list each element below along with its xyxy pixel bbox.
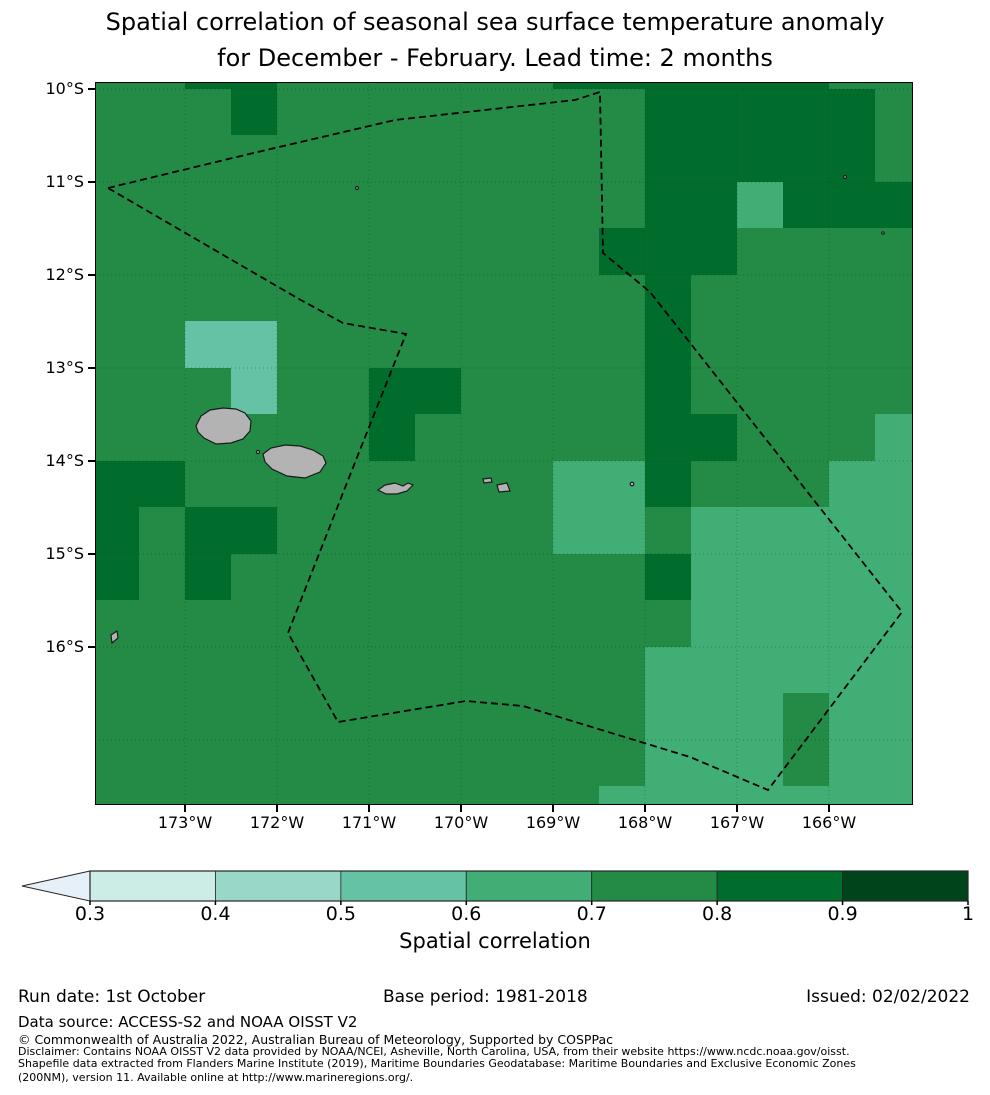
grid-cell xyxy=(829,275,875,321)
grid-cell xyxy=(875,228,913,275)
grid-cell xyxy=(231,600,277,647)
grid-cell xyxy=(277,182,323,228)
colorbar-label: Spatial correlation xyxy=(0,929,990,953)
grid-cell xyxy=(461,600,507,647)
grid-cell xyxy=(369,228,415,275)
grid-cell xyxy=(553,600,599,647)
figure-title: Spatial correlation of seasonal sea surf… xyxy=(0,4,990,76)
grid-cell xyxy=(783,554,829,600)
grid-cell xyxy=(95,228,139,275)
colorbar xyxy=(0,862,990,908)
colorbar-tick-label: 0.6 xyxy=(436,903,496,925)
issued-date-text: Issued: 02/02/2022 xyxy=(806,987,970,1007)
lon-tick-label: 167°W xyxy=(697,813,777,832)
grid-cell xyxy=(691,554,737,600)
grid-cell xyxy=(507,182,553,228)
grid-cell xyxy=(507,228,553,275)
grid-cell xyxy=(599,461,645,507)
grid-cell xyxy=(461,647,507,693)
grid-cell xyxy=(139,321,185,368)
grid-cell xyxy=(737,275,783,321)
grid-cell xyxy=(461,82,507,89)
colorbar-tick-label: 0.3 xyxy=(60,903,120,925)
grid-cell xyxy=(461,228,507,275)
grid-cell xyxy=(553,228,599,275)
lon-tick-mark xyxy=(736,805,738,812)
grid-cell xyxy=(691,461,737,507)
grid-cell xyxy=(829,507,875,554)
disclaimer-line: Shapefile data extracted from Flanders M… xyxy=(18,1057,856,1070)
grid-cell xyxy=(95,740,139,786)
grid-cell xyxy=(369,507,415,554)
grid-cell xyxy=(185,82,231,89)
grid-cell xyxy=(553,275,599,321)
grid-cell xyxy=(599,554,645,600)
grid-cell xyxy=(323,693,369,740)
grid-cell xyxy=(507,693,553,740)
grid-cell xyxy=(875,135,913,182)
colorbar-segment xyxy=(466,871,591,901)
grid-cell xyxy=(875,89,913,135)
grid-cell xyxy=(875,182,913,228)
grid-cell xyxy=(875,275,913,321)
grid-cell xyxy=(691,135,737,182)
grid-cell xyxy=(139,554,185,600)
lon-tick-mark xyxy=(276,805,278,812)
grid-cell xyxy=(461,786,507,805)
grid-cell xyxy=(553,786,599,805)
grid-cell xyxy=(185,740,231,786)
grid-cell xyxy=(139,82,185,89)
grid-cell xyxy=(185,554,231,600)
grid-cell xyxy=(461,275,507,321)
grid-cell xyxy=(185,368,231,414)
grid-cell xyxy=(829,740,875,786)
grid-cell xyxy=(415,740,461,786)
island-dot xyxy=(630,482,634,486)
grid-cell xyxy=(95,461,139,507)
grid-cell xyxy=(553,182,599,228)
lat-tick-mark xyxy=(88,646,95,648)
grid-cell xyxy=(185,461,231,507)
grid-cell xyxy=(139,89,185,135)
grid-cell xyxy=(369,600,415,647)
figure-page: Spatial correlation of seasonal sea surf… xyxy=(0,0,990,1095)
lon-tick-mark xyxy=(184,805,186,812)
grid-cell xyxy=(95,321,139,368)
grid-cell xyxy=(95,647,139,693)
grid-cell xyxy=(185,89,231,135)
lat-tick-label: 10°S xyxy=(24,79,84,98)
grid-cell xyxy=(737,182,783,228)
grid-cell xyxy=(231,321,277,368)
grid-cell xyxy=(829,368,875,414)
colorbar-tick-label: 0.4 xyxy=(185,903,245,925)
grid-cell xyxy=(139,786,185,805)
lon-tick-mark xyxy=(552,805,554,812)
grid-cell xyxy=(829,461,875,507)
grid-cell xyxy=(875,740,913,786)
grid-cell xyxy=(507,786,553,805)
lon-tick-mark xyxy=(460,805,462,812)
grid-cell xyxy=(185,275,231,321)
grid-cell xyxy=(783,461,829,507)
grid-cell xyxy=(553,647,599,693)
data-source-text: Data source: ACCESS-S2 and NOAA OISST V2 xyxy=(18,1013,357,1031)
lon-tick-label: 170°W xyxy=(421,813,501,832)
grid-cell xyxy=(737,368,783,414)
lon-tick-label: 169°W xyxy=(513,813,593,832)
grid-cell xyxy=(231,182,277,228)
colorbar-segment xyxy=(90,871,215,901)
grid-cell xyxy=(829,321,875,368)
grid-cell xyxy=(783,228,829,275)
grid-cell xyxy=(415,647,461,693)
grid-cell xyxy=(461,321,507,368)
colorbar-segment xyxy=(341,871,466,901)
grid-cell xyxy=(323,182,369,228)
grid-cell xyxy=(185,507,231,554)
grid-cell xyxy=(323,507,369,554)
grid-cell xyxy=(829,647,875,693)
grid-cell xyxy=(415,89,461,135)
disclaimer-line: (200NM), version 11. Available online at… xyxy=(18,1071,413,1084)
grid-cell xyxy=(415,135,461,182)
grid-cell xyxy=(645,321,691,368)
grid-cell xyxy=(323,228,369,275)
grid-cell xyxy=(507,600,553,647)
grid-cell xyxy=(139,647,185,693)
grid-cell xyxy=(829,554,875,600)
grid-cell xyxy=(783,693,829,740)
grid-cell xyxy=(369,647,415,693)
grid-cell xyxy=(231,89,277,135)
grid-cell xyxy=(783,82,829,89)
grid-cell xyxy=(645,135,691,182)
grid-cell xyxy=(645,414,691,461)
grid-cell xyxy=(185,228,231,275)
grid-cell xyxy=(185,693,231,740)
lat-tick-mark xyxy=(88,274,95,276)
grid-cell xyxy=(461,135,507,182)
lat-tick-label: 11°S xyxy=(24,172,84,191)
grid-cell xyxy=(553,414,599,461)
grid-cell xyxy=(507,135,553,182)
colorbar-tick-label: 1 xyxy=(938,903,990,925)
lat-tick-mark xyxy=(88,88,95,90)
grid-cell xyxy=(783,368,829,414)
grid-cell xyxy=(461,554,507,600)
grid-cell xyxy=(369,786,415,805)
grid-cell xyxy=(231,228,277,275)
grid-cell xyxy=(829,228,875,275)
grid-cell xyxy=(369,135,415,182)
grid-cell xyxy=(507,740,553,786)
grid-cell xyxy=(875,321,913,368)
grid-cell xyxy=(415,228,461,275)
grid-cell xyxy=(691,368,737,414)
grid-cell xyxy=(737,461,783,507)
grid-cell xyxy=(323,647,369,693)
grid-cell xyxy=(507,507,553,554)
grid-cell xyxy=(277,135,323,182)
grid-cell xyxy=(783,600,829,647)
grid-cell xyxy=(691,414,737,461)
island-tau xyxy=(497,483,510,492)
grid-cell xyxy=(95,368,139,414)
lon-tick-label: 172°W xyxy=(237,813,317,832)
lat-tick-label: 13°S xyxy=(24,358,84,377)
grid-cell xyxy=(829,414,875,461)
grid-cell xyxy=(875,82,913,89)
grid-cell xyxy=(553,89,599,135)
grid-cell xyxy=(691,89,737,135)
grid-cell xyxy=(369,82,415,89)
grid-cell xyxy=(139,182,185,228)
grid-cell xyxy=(599,507,645,554)
grid-cell xyxy=(645,740,691,786)
grid-cell xyxy=(415,786,461,805)
grid-cell xyxy=(645,82,691,89)
lat-tick-label: 16°S xyxy=(24,637,84,656)
grid-cell xyxy=(737,82,783,89)
grid-cell xyxy=(415,507,461,554)
grid-cell xyxy=(645,507,691,554)
grid-cell xyxy=(507,368,553,414)
grid-cell xyxy=(783,321,829,368)
grid-cell xyxy=(645,182,691,228)
grid-cell xyxy=(507,82,553,89)
grid-cell xyxy=(461,507,507,554)
grid-cell xyxy=(415,693,461,740)
grid-cell xyxy=(277,786,323,805)
grid-cell xyxy=(139,693,185,740)
grid-cell xyxy=(507,275,553,321)
grid-cell xyxy=(369,182,415,228)
colorbar-tick-label: 0.9 xyxy=(813,903,873,925)
grid-cell xyxy=(645,89,691,135)
grid-cell xyxy=(553,507,599,554)
grid-cell xyxy=(737,647,783,693)
grid-cell xyxy=(461,414,507,461)
lon-tick-mark xyxy=(644,805,646,812)
grid-cell xyxy=(95,786,139,805)
colorbar-segment xyxy=(592,871,717,901)
grid-cell xyxy=(231,135,277,182)
grid-cell xyxy=(737,321,783,368)
colorbar-segment xyxy=(215,871,340,901)
grid-cell xyxy=(369,321,415,368)
figure-title-line1: Spatial correlation of seasonal sea surf… xyxy=(0,4,990,40)
grid-cell xyxy=(783,740,829,786)
lon-tick-label: 171°W xyxy=(329,813,409,832)
grid-cell xyxy=(875,647,913,693)
grid-cell xyxy=(645,647,691,693)
grid-cell xyxy=(185,182,231,228)
grid-cell xyxy=(95,693,139,740)
lat-tick-mark xyxy=(88,460,95,462)
grid-cell xyxy=(737,135,783,182)
grid-cell xyxy=(737,600,783,647)
grid-cell xyxy=(185,600,231,647)
grid-cell xyxy=(415,368,461,414)
grid-cell xyxy=(277,82,323,89)
grid-cell xyxy=(875,693,913,740)
grid-cell xyxy=(829,600,875,647)
grid-cell xyxy=(323,600,369,647)
grid-cell xyxy=(553,554,599,600)
grid-cell xyxy=(323,89,369,135)
island-dot xyxy=(882,232,884,234)
lon-tick-label: 168°W xyxy=(605,813,685,832)
grid-cell xyxy=(691,693,737,740)
grid-cell xyxy=(553,321,599,368)
grid-cell xyxy=(95,89,139,135)
grid-cell xyxy=(737,693,783,740)
grid-cell xyxy=(323,321,369,368)
colorbar-tick-label: 0.5 xyxy=(311,903,371,925)
grid-cell xyxy=(645,228,691,275)
grid-cell xyxy=(415,321,461,368)
grid-cell xyxy=(95,600,139,647)
grid-cell xyxy=(277,89,323,135)
grid-cell xyxy=(95,135,139,182)
grid-cell xyxy=(231,82,277,89)
grid-cell xyxy=(231,647,277,693)
grid-cell xyxy=(737,228,783,275)
grid-cell xyxy=(783,89,829,135)
grid-cell xyxy=(691,82,737,89)
grid-cell xyxy=(139,461,185,507)
grid-cell xyxy=(415,182,461,228)
grid-cell xyxy=(323,135,369,182)
grid-cell xyxy=(553,461,599,507)
grid-cell xyxy=(369,740,415,786)
grid-cell xyxy=(599,414,645,461)
grid-cell xyxy=(599,693,645,740)
lon-tick-mark xyxy=(828,805,830,812)
grid-cell xyxy=(369,414,415,461)
grid-cell xyxy=(323,82,369,89)
grid-cell xyxy=(645,786,691,805)
grid-cell xyxy=(691,182,737,228)
grid-cell xyxy=(599,182,645,228)
grid-cell xyxy=(829,89,875,135)
grid-cell xyxy=(139,368,185,414)
grid-cell xyxy=(783,786,829,805)
lat-tick-mark xyxy=(88,181,95,183)
grid-cell xyxy=(691,786,737,805)
grid-cell xyxy=(783,647,829,693)
grid-cell xyxy=(783,135,829,182)
grid-cell xyxy=(277,368,323,414)
grid-cell xyxy=(691,228,737,275)
grid-cell xyxy=(185,321,231,368)
grid-cell xyxy=(783,182,829,228)
grid-cell xyxy=(829,786,875,805)
run-date-text: Run date: 1st October xyxy=(18,987,205,1007)
base-period-text: Base period: 1981-2018 xyxy=(383,987,588,1007)
grid-cell xyxy=(369,89,415,135)
grid-cell xyxy=(599,786,645,805)
grid-cell xyxy=(139,507,185,554)
grid-cell xyxy=(599,321,645,368)
grid-cell xyxy=(231,554,277,600)
grid-cell xyxy=(415,600,461,647)
lat-tick-mark xyxy=(88,553,95,555)
grid-cell xyxy=(599,135,645,182)
grid-cell xyxy=(691,321,737,368)
map-area xyxy=(95,82,913,805)
grid-cell xyxy=(415,554,461,600)
grid-cell xyxy=(553,82,599,89)
grid-cell xyxy=(553,740,599,786)
grid-cell xyxy=(277,321,323,368)
grid-cell xyxy=(737,786,783,805)
grid-cell xyxy=(507,321,553,368)
grid-cell xyxy=(829,82,875,89)
grid-cell xyxy=(369,368,415,414)
grid-cell xyxy=(461,368,507,414)
colorbar-segment xyxy=(717,871,842,901)
grid-cell xyxy=(691,275,737,321)
grid-cell xyxy=(139,275,185,321)
grid-cell xyxy=(599,647,645,693)
grid-cell xyxy=(461,693,507,740)
grid-cell xyxy=(875,368,913,414)
grid-cell xyxy=(691,600,737,647)
grid-cell xyxy=(645,461,691,507)
colorbar-tick-label: 0.8 xyxy=(687,903,747,925)
grid-cell xyxy=(507,89,553,135)
grid-cell xyxy=(277,693,323,740)
grid-cell xyxy=(783,275,829,321)
grid-cell xyxy=(645,600,691,647)
grid-cell xyxy=(277,507,323,554)
grid-cell xyxy=(95,507,139,554)
grid-cell xyxy=(553,368,599,414)
grid-cell xyxy=(507,554,553,600)
grid-cell xyxy=(461,740,507,786)
grid-cell xyxy=(231,507,277,554)
grid-cell xyxy=(599,740,645,786)
grid-cell xyxy=(599,368,645,414)
colorbar-tick-label: 0.7 xyxy=(562,903,622,925)
grid-cell xyxy=(461,182,507,228)
grid-cell xyxy=(95,182,139,228)
grid-cell xyxy=(415,414,461,461)
grid-cell xyxy=(231,368,277,414)
grid-cell xyxy=(277,740,323,786)
grid-cell xyxy=(323,740,369,786)
grid-cell xyxy=(875,786,913,805)
grid-cell xyxy=(369,554,415,600)
grid-cell xyxy=(553,135,599,182)
grid-cell xyxy=(139,740,185,786)
grid-cell xyxy=(323,786,369,805)
grid-cell xyxy=(95,554,139,600)
grid-cell xyxy=(277,647,323,693)
grid-cell xyxy=(875,461,913,507)
grid-cell xyxy=(95,414,139,461)
grid-cell xyxy=(277,275,323,321)
grid-cell xyxy=(783,507,829,554)
grid-cell xyxy=(95,275,139,321)
grid-cell xyxy=(737,414,783,461)
grid-cell xyxy=(369,275,415,321)
grid-cell xyxy=(691,507,737,554)
grid-cell xyxy=(139,228,185,275)
